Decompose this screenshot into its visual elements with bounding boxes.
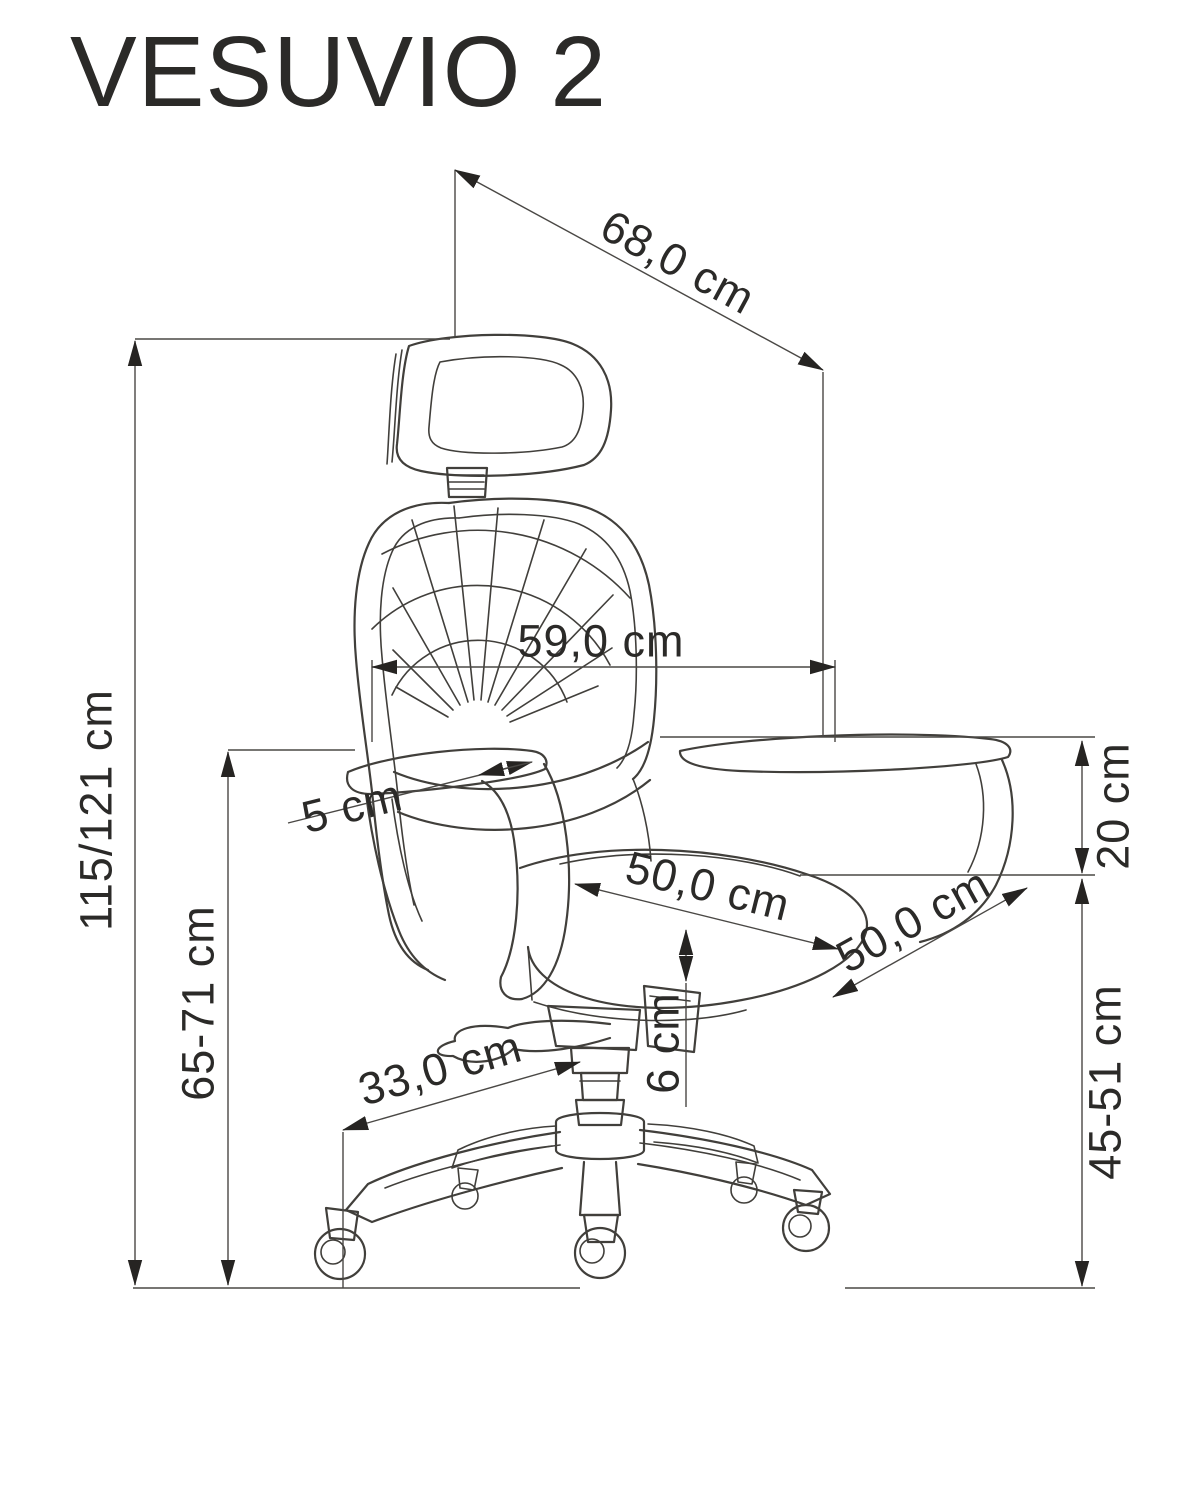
dim-label-armrest-height: 65-71 cm xyxy=(176,905,221,1101)
extension-lines xyxy=(133,170,1095,1288)
dim-label-overall-height: 115/121 cm xyxy=(74,689,119,931)
backrest-frame xyxy=(355,499,657,970)
dim-label-seat-height: 45-51 cm xyxy=(1083,984,1128,1180)
chair-dimension-drawing xyxy=(0,0,1200,1502)
dim-label-mechanism-gap: 6 cm xyxy=(641,992,686,1094)
headrest xyxy=(387,335,611,476)
dim-label-armrest-above-seat: 20 cm xyxy=(1091,742,1136,870)
base-star xyxy=(346,1113,830,1222)
mesh-fan-pattern xyxy=(372,506,650,830)
chair-illustration xyxy=(315,335,1013,1279)
dim-label-backrest-width: 59,0 cm xyxy=(517,619,684,664)
headrest-neck-connector xyxy=(447,468,487,497)
casters xyxy=(315,1162,829,1279)
dimension-diagram: VESUVIO 2 xyxy=(0,0,1200,1502)
dimension-lines xyxy=(135,170,1082,1286)
